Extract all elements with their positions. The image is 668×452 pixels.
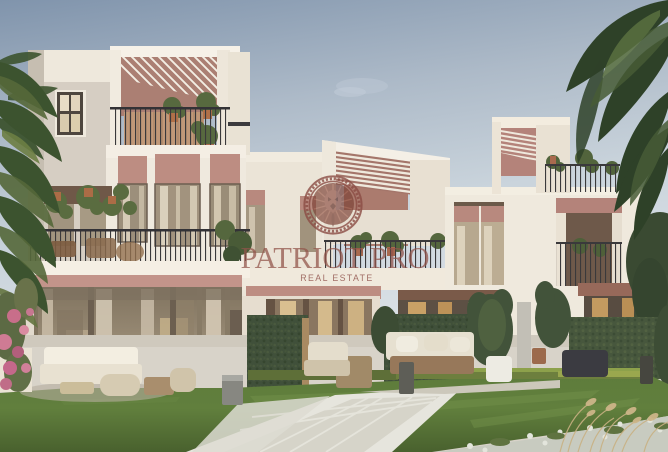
svg-text:REAL ESTATE: REAL ESTATE [300, 273, 373, 283]
svg-text:PATRIOT PRO: PATRIOT PRO [240, 241, 429, 275]
